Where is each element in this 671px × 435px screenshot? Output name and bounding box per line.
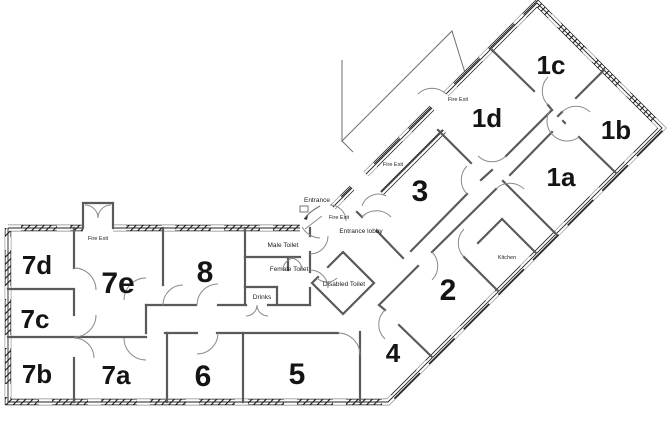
female-toilet-label: Female Toilet [270,266,309,273]
room-label-1b: 1b [601,115,631,145]
fire-exit-entrance-label: Fire Exit [329,215,350,221]
fire-exit-vestibule-label: Fire Exit [88,236,109,242]
entrance-lobby-label: Entrance lobby [339,228,383,235]
floor-plan-page: 7d 7e 8 7c 7b 7a 6 5 4 3 2 1d 1c 1b 1a F… [0,0,671,435]
male-toilet-label: Male Toilet [268,242,299,249]
room-label-5: 5 [289,358,306,391]
room-label-1d: 1d [472,103,502,133]
room-label-6: 6 [195,360,212,393]
fire-exit-mid-label: Fire Exit [383,162,404,168]
floor-plan-drawing: 7d 7e 8 7c 7b 7a 6 5 4 3 2 1d 1c 1b 1a F… [0,0,671,435]
fire-exit-upper-label: Fire Exit [448,97,469,103]
drinks-label: Drinks [253,294,272,301]
entrance-label: Entrance [304,197,330,204]
room-label-7e: 7e [101,267,134,300]
room-label-4: 4 [386,338,401,368]
room-label-7b: 7b [22,359,52,389]
room-label-3: 3 [412,175,429,208]
room-label-7c: 7c [21,304,50,334]
disabled-toilet-label: Disabled Toilet [323,281,365,288]
room-label-1c: 1c [537,50,566,80]
room-label-1a: 1a [547,162,576,192]
kitchen-label: Kitchen [498,255,516,261]
room-label-7d: 7d [22,250,52,280]
room-label-2: 2 [440,274,457,307]
room-label-8: 8 [197,256,214,289]
room-label-7a: 7a [102,360,131,390]
